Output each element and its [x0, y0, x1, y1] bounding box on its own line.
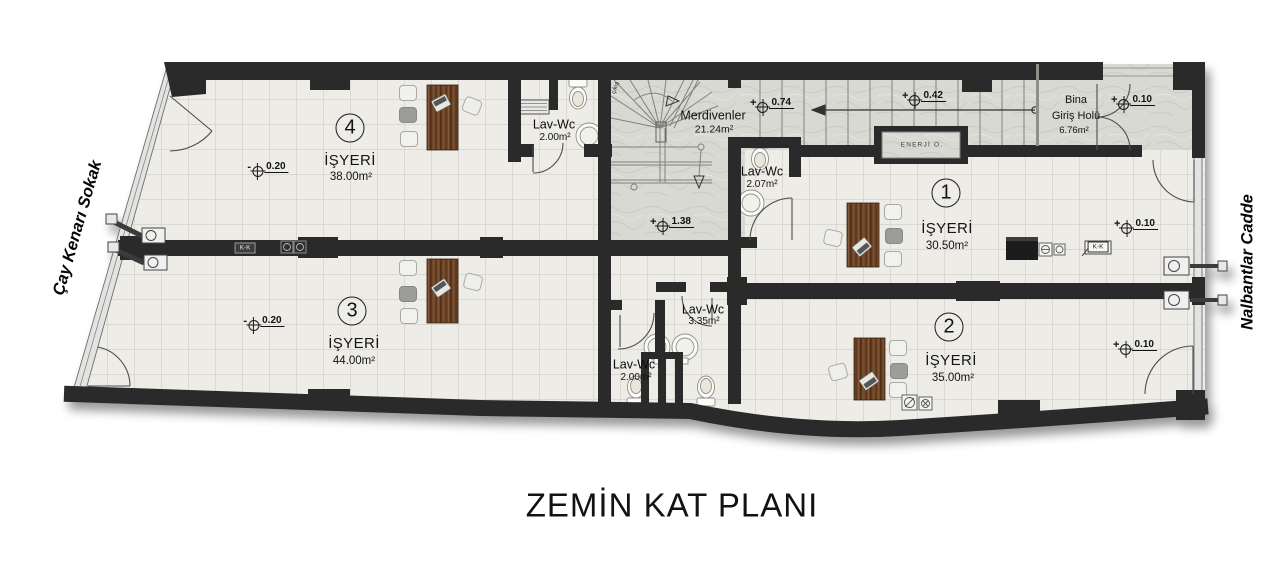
section-mark-kk-2: K-K [1088, 242, 1109, 253]
room-3-number: 3 [338, 297, 367, 326]
toilet-icon [697, 376, 715, 406]
level-marker-corridor-042: +0.42 [902, 94, 946, 106]
room-1-number: 1 [932, 179, 961, 208]
level-symbol-icon [1120, 344, 1131, 355]
room-3-area: 44.00m² [333, 355, 375, 367]
level-symbol-icon [1118, 99, 1129, 110]
room-1-name: İŞYERİ [921, 221, 973, 237]
section-mark-kk-1: K-K [235, 243, 256, 254]
street-label-right: Nalbantlar Cadde [1239, 194, 1256, 330]
room-4-number: 4 [336, 114, 365, 143]
level-marker-room2: +0.10 [1113, 343, 1157, 355]
level-symbol-icon [1121, 223, 1132, 234]
room-2-number: 2 [935, 313, 964, 342]
room-2-name: İŞYERİ [925, 353, 977, 369]
entrance-hall-area: 6.76m² [1059, 126, 1089, 136]
level-symbol-icon [657, 221, 668, 232]
stairs-area: 21.24m² [695, 124, 734, 135]
glass-wall-right [1194, 156, 1202, 392]
level-symbol-icon [252, 166, 263, 177]
page-title: ZEMİN KAT PLANI [526, 489, 819, 524]
level-marker-room4: -0.20 [247, 165, 288, 177]
room-4-area: 38.00m² [330, 171, 372, 183]
floor-plan: 1 İŞYERİ 30.50m² 2 İŞYERİ 35.00m² 3 İŞYE… [0, 0, 1286, 565]
stairs-name: Merdivenler [680, 109, 745, 122]
lavwc-207-name: Lav-Wc [741, 165, 783, 178]
level-marker-hall: +0.10 [1111, 98, 1155, 110]
counter-room1 [1006, 237, 1038, 260]
room-3-name: İŞYERİ [328, 336, 380, 352]
level-symbol-icon [757, 102, 768, 113]
radiator-icon [519, 100, 549, 114]
lavwc-335-area: 3.35m² [688, 317, 719, 328]
lavwc-top-name: Lav-Wc [533, 118, 575, 131]
level-marker-corridor-074: +0.74 [750, 101, 794, 113]
room-1-area: 30.50m² [926, 240, 968, 252]
lavwc-top-area: 2.00m² [539, 133, 570, 144]
floor-plan-canvas [0, 0, 1286, 565]
toilet-icon [569, 79, 587, 109]
level-symbol-icon [909, 95, 920, 106]
room-2-area: 35.00m² [932, 372, 974, 384]
level-symbol-icon [248, 320, 259, 331]
entrance-hall-name-2: Giriş Holü [1052, 111, 1100, 123]
entrance-hall-name-1: Bina [1065, 95, 1087, 107]
lavwc-335-name: Lav-Wc [682, 303, 724, 316]
lavwc-bottom-name: Lav-Wc [613, 358, 655, 371]
level-marker-room3: -0.20 [243, 319, 284, 331]
room-4-name: İŞYERİ [324, 153, 376, 169]
utility-room-label: ENERJİ O. [901, 143, 944, 150]
lavwc-207-area: 2.07m² [746, 180, 777, 191]
level-marker-stairs: +1.38 [650, 220, 694, 232]
level-marker-room1: +0.10 [1114, 222, 1158, 234]
lavwc-bottom-area: 2.00m² [620, 373, 651, 384]
